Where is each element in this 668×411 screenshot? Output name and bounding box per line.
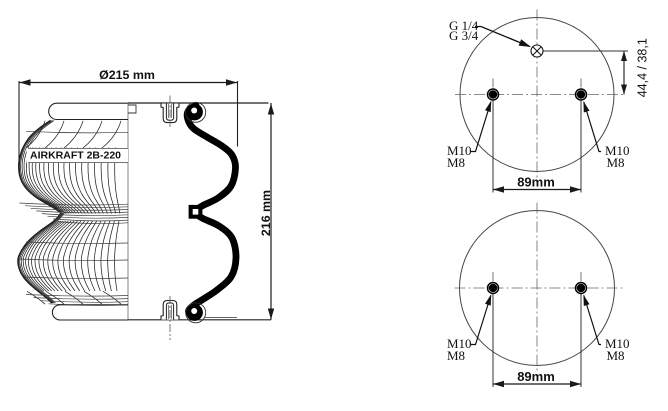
svg-text:M8: M8	[607, 348, 625, 363]
svg-text:89mm: 89mm	[517, 175, 555, 190]
svg-text:M8: M8	[447, 155, 465, 170]
svg-text:89mm: 89mm	[517, 369, 555, 384]
svg-text:M8: M8	[607, 155, 625, 170]
svg-text:AIRKRAFT 2B-220: AIRKRAFT 2B-220	[30, 150, 121, 162]
svg-text:216 mm: 216 mm	[259, 190, 273, 236]
svg-text:Ø215 mm: Ø215 mm	[99, 68, 155, 82]
svg-text:44,4 / 38,1: 44,4 / 38,1	[636, 38, 650, 97]
svg-text:G 3/4: G 3/4	[449, 28, 479, 43]
svg-text:M8: M8	[447, 348, 465, 363]
